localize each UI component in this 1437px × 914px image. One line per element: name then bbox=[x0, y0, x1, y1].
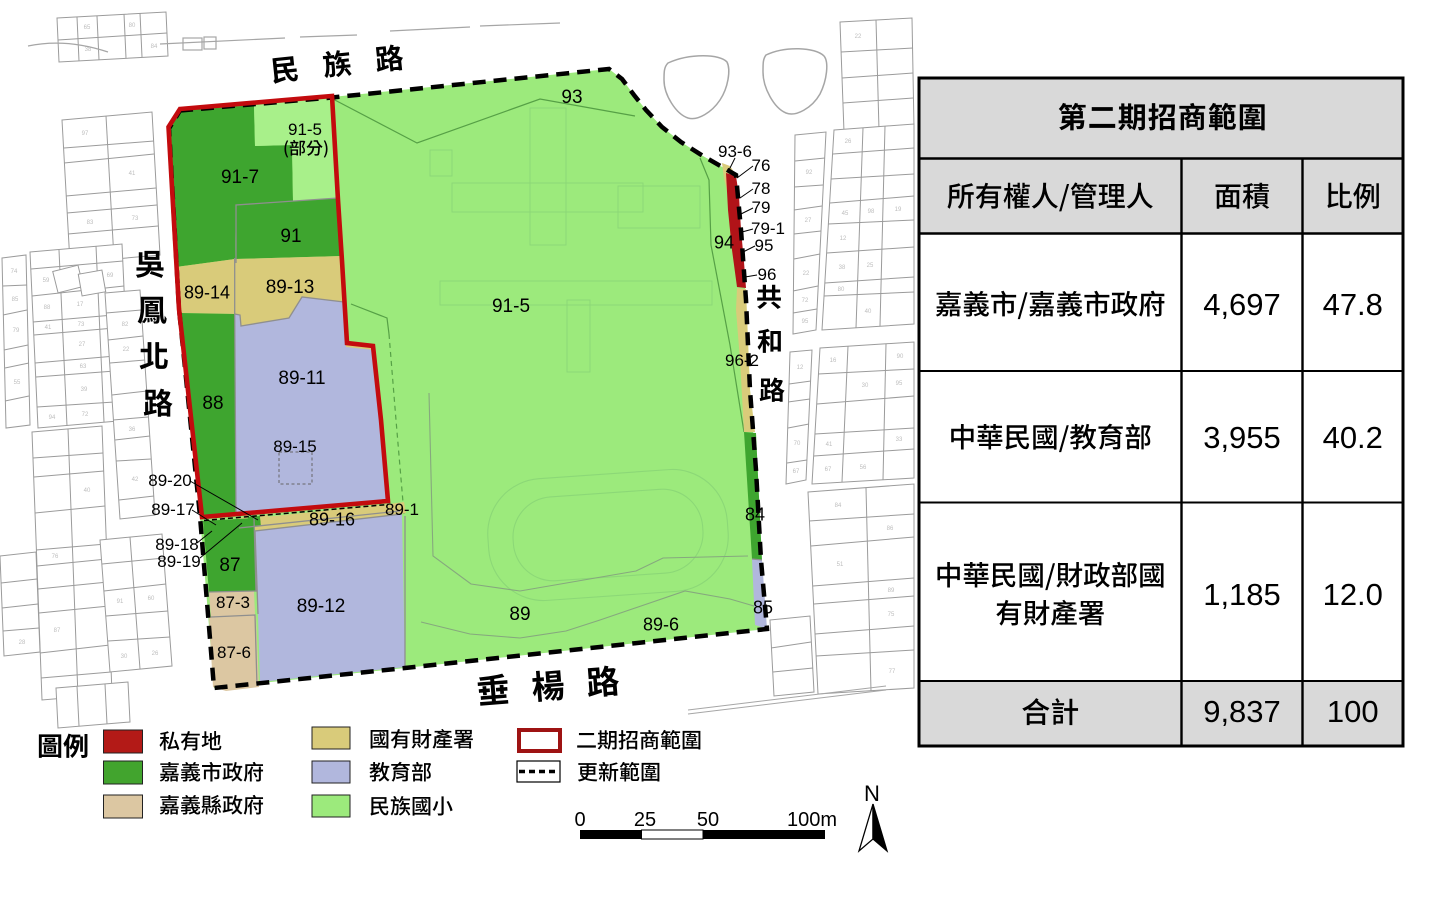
svg-text:50: 50 bbox=[697, 809, 719, 831]
svg-text:16: 16 bbox=[830, 358, 837, 364]
svg-text:96-2: 96-2 bbox=[725, 351, 759, 370]
svg-text:93: 93 bbox=[561, 87, 582, 108]
svg-text:41: 41 bbox=[45, 325, 52, 331]
svg-text:76: 76 bbox=[752, 156, 771, 175]
svg-text:87-6: 87-6 bbox=[217, 643, 251, 662]
svg-text:4,697: 4,697 bbox=[1203, 287, 1281, 322]
svg-text:73: 73 bbox=[78, 322, 85, 328]
svg-text:40.2: 40.2 bbox=[1323, 420, 1383, 455]
svg-text:77: 77 bbox=[889, 669, 896, 675]
svg-text:79: 79 bbox=[752, 198, 771, 217]
svg-text:45: 45 bbox=[842, 211, 849, 217]
svg-text:22: 22 bbox=[123, 347, 130, 353]
svg-text:82: 82 bbox=[122, 322, 129, 328]
svg-text:17: 17 bbox=[77, 302, 84, 308]
svg-text:67: 67 bbox=[825, 467, 832, 473]
svg-text:89-17: 89-17 bbox=[151, 500, 194, 519]
svg-text:86: 86 bbox=[887, 526, 894, 532]
svg-text:40: 40 bbox=[865, 309, 872, 315]
svg-text:40: 40 bbox=[84, 488, 91, 494]
svg-text:91-5: 91-5 bbox=[492, 296, 530, 317]
svg-text:75: 75 bbox=[888, 612, 895, 618]
svg-text:84: 84 bbox=[745, 504, 765, 524]
svg-text:89-11: 89-11 bbox=[278, 368, 325, 389]
svg-text:26: 26 bbox=[152, 651, 159, 657]
svg-text:93-6: 93-6 bbox=[718, 142, 752, 161]
svg-text:41: 41 bbox=[826, 442, 833, 448]
svg-text:3,955: 3,955 bbox=[1203, 420, 1281, 455]
svg-text:22: 22 bbox=[855, 34, 862, 40]
svg-text:42: 42 bbox=[132, 477, 139, 483]
svg-text:85: 85 bbox=[12, 297, 19, 303]
svg-text:91-5: 91-5 bbox=[288, 120, 322, 139]
svg-text:30: 30 bbox=[862, 383, 869, 389]
svg-text:38: 38 bbox=[85, 47, 92, 53]
svg-text:55: 55 bbox=[14, 380, 21, 386]
svg-text:89-1: 89-1 bbox=[385, 500, 419, 519]
svg-text:100: 100 bbox=[1327, 694, 1379, 729]
svg-text:89-15: 89-15 bbox=[273, 437, 316, 456]
svg-text:91-7: 91-7 bbox=[221, 167, 259, 188]
svg-text:84: 84 bbox=[151, 44, 158, 50]
svg-text:27: 27 bbox=[79, 342, 86, 348]
svg-text:56: 56 bbox=[860, 465, 867, 471]
svg-text:89-6: 89-6 bbox=[643, 614, 679, 634]
svg-text:70: 70 bbox=[794, 441, 801, 447]
svg-text:89-14: 89-14 bbox=[184, 282, 230, 302]
svg-text:89: 89 bbox=[509, 604, 530, 625]
svg-text:88: 88 bbox=[202, 393, 223, 414]
svg-text:25: 25 bbox=[867, 263, 874, 269]
svg-text:1,185: 1,185 bbox=[1203, 577, 1281, 612]
svg-text:12: 12 bbox=[797, 365, 804, 371]
svg-text:80: 80 bbox=[129, 23, 136, 29]
svg-text:36: 36 bbox=[129, 427, 136, 433]
svg-text:47.8: 47.8 bbox=[1323, 287, 1383, 322]
svg-text:22: 22 bbox=[803, 271, 810, 277]
svg-text:26: 26 bbox=[845, 139, 852, 145]
svg-text:65: 65 bbox=[84, 25, 91, 31]
svg-text:91: 91 bbox=[280, 226, 301, 247]
svg-text:59: 59 bbox=[43, 278, 50, 284]
svg-text:74: 74 bbox=[11, 269, 18, 275]
svg-text:73: 73 bbox=[132, 216, 139, 222]
svg-text:87: 87 bbox=[219, 555, 240, 576]
svg-text:87: 87 bbox=[54, 628, 61, 634]
svg-text:72: 72 bbox=[82, 412, 89, 418]
svg-text:60: 60 bbox=[148, 596, 155, 602]
svg-text:28: 28 bbox=[19, 640, 26, 646]
svg-text:88: 88 bbox=[44, 305, 51, 311]
svg-text:89: 89 bbox=[888, 588, 895, 594]
svg-text:51: 51 bbox=[837, 562, 844, 568]
svg-text:95: 95 bbox=[755, 236, 774, 255]
svg-text:89-13: 89-13 bbox=[266, 277, 315, 298]
svg-text:89-12: 89-12 bbox=[297, 596, 346, 617]
svg-text:19: 19 bbox=[895, 207, 902, 213]
svg-text:98: 98 bbox=[868, 209, 875, 215]
svg-text:89-20: 89-20 bbox=[148, 471, 191, 490]
svg-text:95: 95 bbox=[802, 319, 809, 325]
svg-text:97: 97 bbox=[82, 131, 89, 137]
svg-text:12: 12 bbox=[840, 236, 847, 242]
svg-text:95: 95 bbox=[896, 381, 903, 387]
svg-text:39: 39 bbox=[81, 387, 88, 393]
svg-text:89-16: 89-16 bbox=[309, 509, 355, 529]
svg-text:91: 91 bbox=[117, 599, 124, 605]
svg-text:72: 72 bbox=[802, 298, 809, 304]
svg-text:12.0: 12.0 bbox=[1323, 577, 1383, 612]
svg-text:9,837: 9,837 bbox=[1203, 694, 1281, 729]
svg-text:90: 90 bbox=[897, 354, 904, 360]
svg-text:79: 79 bbox=[13, 328, 20, 334]
svg-text:94: 94 bbox=[49, 415, 56, 421]
svg-text:76: 76 bbox=[52, 554, 59, 560]
svg-text:96: 96 bbox=[758, 265, 777, 284]
svg-text:92: 92 bbox=[806, 170, 813, 176]
svg-text:69: 69 bbox=[107, 273, 114, 279]
svg-text:89-19: 89-19 bbox=[157, 552, 200, 571]
svg-text:N: N bbox=[864, 781, 880, 806]
svg-text:78: 78 bbox=[752, 179, 771, 198]
svg-text:27: 27 bbox=[805, 218, 812, 224]
svg-text:63: 63 bbox=[80, 364, 87, 370]
svg-text:87-3: 87-3 bbox=[216, 593, 250, 612]
svg-text:0: 0 bbox=[574, 809, 585, 831]
svg-text:80: 80 bbox=[838, 287, 845, 293]
svg-text:100m: 100m bbox=[787, 809, 837, 831]
svg-text:41: 41 bbox=[129, 171, 136, 177]
svg-text:38: 38 bbox=[839, 265, 846, 271]
svg-text:94: 94 bbox=[714, 232, 734, 252]
svg-text:85: 85 bbox=[753, 597, 773, 617]
svg-text:30: 30 bbox=[121, 654, 128, 660]
svg-text:84: 84 bbox=[835, 503, 842, 509]
svg-text:83: 83 bbox=[87, 220, 94, 226]
svg-text:25: 25 bbox=[634, 809, 656, 831]
svg-text:67: 67 bbox=[793, 469, 800, 475]
svg-text:33: 33 bbox=[896, 437, 903, 443]
